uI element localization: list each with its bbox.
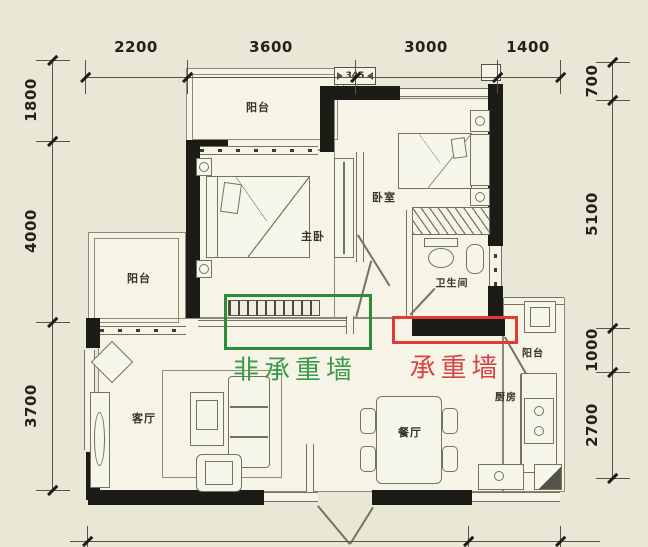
dim-top-3600: 3600 (249, 38, 293, 56)
dining-chair-2 (360, 446, 376, 472)
dim-right-2700: 2700 (583, 403, 601, 447)
stove-burner-1 (534, 406, 544, 416)
label-balcony-top: 阳台 (246, 99, 270, 115)
dim-left-3700: 3700 (22, 384, 40, 428)
floor-plan-canvas: 345 阳台 主卧 (0, 0, 648, 547)
master-lamp-top (199, 162, 209, 172)
partition-master-right (356, 152, 364, 262)
entry-door-leaf-1 (317, 505, 350, 544)
label-balcony-kitchen: 阳台 (522, 345, 544, 360)
dim-right-5100: 5100 (583, 192, 601, 236)
window-kitchen-bottom (472, 492, 560, 502)
master-bed (206, 176, 310, 258)
toilet-bowl (428, 248, 454, 268)
window-bathroom-right (489, 246, 502, 286)
window-master-balcony (200, 146, 318, 155)
coffee-table-inner (196, 400, 218, 430)
master-wardrobe-line (343, 162, 345, 254)
dim-top-2200: 2200 (114, 38, 158, 56)
non-load-bearing-label: 非承重墙 (233, 350, 357, 387)
dining-chair-1 (360, 408, 376, 434)
stove-burner-2 (534, 426, 544, 436)
dim-right-line (612, 62, 613, 478)
dim-top-1400: 1400 (506, 38, 550, 56)
tv-cabinet-detail (94, 412, 105, 466)
window-tag-left-arrow (337, 72, 343, 80)
master-bed-headboard (206, 176, 218, 258)
label-living-room: 客厅 (132, 410, 156, 426)
dim-top-3000: 3000 (404, 38, 448, 56)
armchair-seat (205, 461, 233, 485)
entry-door-leaf-2 (349, 507, 373, 544)
toilet-tank (424, 238, 458, 247)
dining-chair-4 (442, 446, 458, 472)
label-balcony-left: 阳台 (127, 270, 151, 286)
wall-balcony-bedroom-divider (320, 86, 334, 152)
dim-bottom-ext-3 (560, 526, 561, 547)
non-load-bearing-box (224, 294, 372, 350)
window-tag-right-arrow (367, 72, 373, 80)
bedroom-headboard-cabinet (470, 134, 490, 186)
window-bottom-left (264, 492, 318, 502)
dim-top-line (85, 77, 560, 78)
sofa-cushion-line-2 (230, 436, 268, 438)
wall-living-left-top (86, 318, 100, 348)
label-bedroom: 卧室 (372, 189, 396, 205)
label-kitchen: 厨房 (495, 389, 517, 404)
stove (524, 398, 554, 444)
bedroom-lamp-bottom (475, 192, 485, 202)
dim-right-1000: 1000 (583, 328, 601, 372)
window-bedroom-top (400, 88, 488, 97)
wall-right-upper (488, 84, 503, 246)
bedroom-lamp-top (475, 116, 485, 126)
dim-left-line (52, 60, 53, 490)
window-living-balcony (100, 326, 186, 335)
dim-left-1800: 1800 (22, 78, 40, 122)
washbasin (466, 244, 484, 274)
dining-chair-3 (442, 408, 458, 434)
master-lamp-bottom (199, 264, 209, 274)
washing-machine-inner (530, 307, 550, 327)
kitchen-corner-cabinet (534, 464, 562, 490)
bedroom-bed-pillow (451, 137, 468, 159)
sofa-cushion-line-1 (230, 406, 268, 408)
label-dining-room: 餐厅 (398, 424, 422, 440)
load-bearing-label: 承重墙 (409, 348, 502, 385)
dim-bottom-ext-1 (87, 526, 88, 547)
kitchen-sink-drain (494, 471, 504, 481)
load-bearing-box (392, 316, 518, 344)
dining-table (376, 396, 442, 484)
dim-left-4000: 4000 (22, 209, 40, 253)
dim-bottom-line (70, 541, 600, 542)
dim-bottom-ext-2 (468, 526, 469, 547)
dim-right-700: 700 (583, 65, 601, 98)
shower-area (412, 207, 490, 235)
label-master-bedroom: 主卧 (301, 228, 325, 244)
label-bathroom: 卫生间 (436, 275, 469, 290)
partition-entry-stub (306, 444, 314, 492)
wall-bottom-right (372, 490, 472, 505)
wall-bottom-left (88, 490, 264, 505)
